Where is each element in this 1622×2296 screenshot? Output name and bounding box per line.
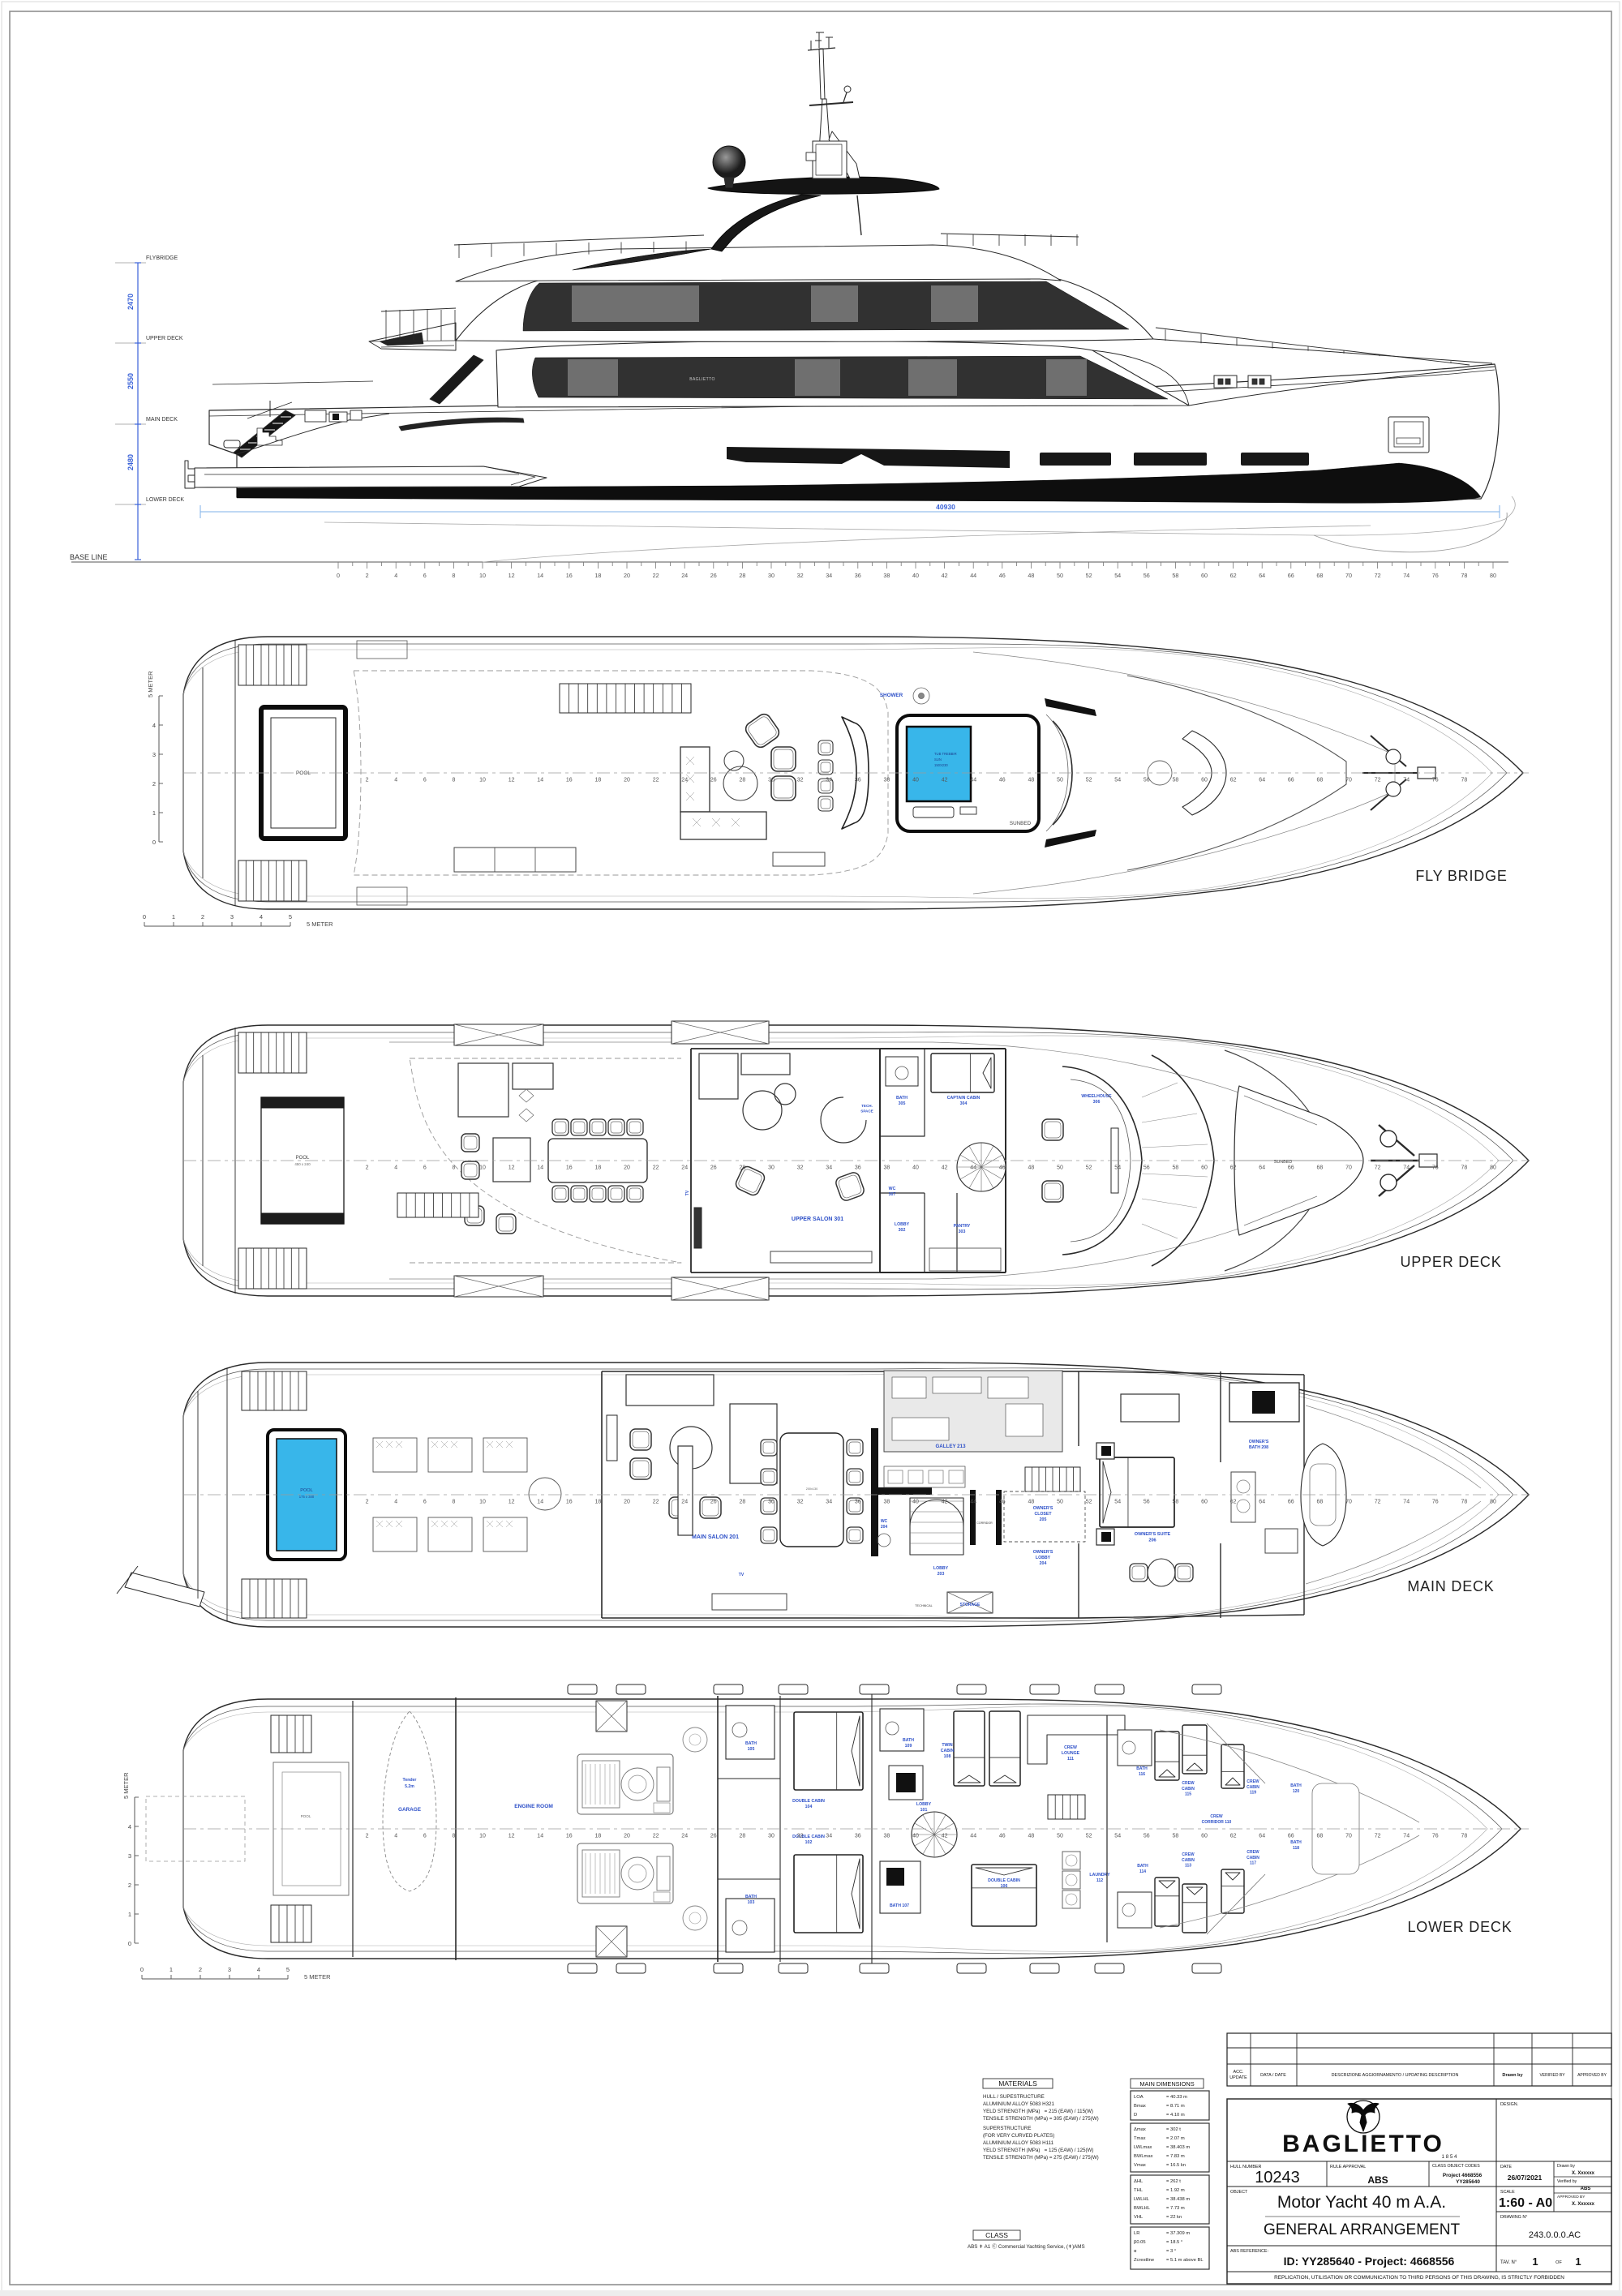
- svg-text:302: 302: [899, 1228, 906, 1233]
- svg-text:5 METER: 5 METER: [307, 921, 333, 928]
- svg-text:YELD STRENGTH (MPa) = 215 (E: YELD STRENGTH (MPa) = 215 (EAW) / 115(W): [983, 2109, 1093, 2114]
- svg-text:4: 4: [394, 572, 397, 579]
- svg-text:BATH: BATH: [903, 1738, 914, 1743]
- svg-text:44: 44: [970, 1834, 976, 1839]
- svg-text:2: 2: [199, 1966, 202, 1973]
- svg-text:Verified by: Verified by: [1557, 2179, 1577, 2184]
- svg-text:38: 38: [884, 1834, 890, 1839]
- svg-text:TENSILE STRENGTH (MPa) = 275 (: TENSILE STRENGTH (MPa) = 275 (EAW) / 275…: [983, 2155, 1099, 2161]
- svg-text:12: 12: [508, 1500, 515, 1505]
- svg-text:ALUMINIUM ALLOY 5083 H111: ALUMINIUM ALLOY 5083 H111: [983, 2140, 1054, 2146]
- svg-text:TV: TV: [685, 1190, 690, 1195]
- svg-text:44: 44: [970, 1165, 976, 1171]
- svg-text:102: 102: [805, 1840, 813, 1845]
- svg-text:50: 50: [1057, 1165, 1063, 1171]
- svg-text:74: 74: [1403, 572, 1410, 579]
- svg-text:YY285640: YY285640: [1456, 2179, 1480, 2185]
- svg-text:46: 46: [999, 572, 1006, 579]
- svg-text:2550: 2550: [127, 373, 135, 389]
- svg-text:50: 50: [1057, 778, 1063, 783]
- svg-text:THL: THL: [1134, 2188, 1144, 2193]
- svg-text:76: 76: [1432, 572, 1439, 579]
- svg-text:FLYBRIDGE: FLYBRIDGE: [146, 255, 178, 261]
- svg-text:= 8.71 m: = 8.71 m: [1166, 2104, 1185, 2109]
- svg-text:22: 22: [653, 572, 659, 579]
- svg-text:3: 3: [228, 1966, 231, 1973]
- svg-text:104: 104: [805, 1805, 813, 1809]
- svg-text:60: 60: [1201, 1165, 1208, 1171]
- svg-text:Bmax: Bmax: [1134, 2104, 1146, 2109]
- svg-text:70: 70: [1345, 1165, 1352, 1171]
- svg-text:26: 26: [710, 778, 717, 783]
- svg-text:304: 304: [960, 1101, 968, 1106]
- svg-text:450 x 240: 450 x 240: [294, 1162, 311, 1166]
- svg-text:ABS ✝ A1 Ⓒ Commercial Yachting: ABS ✝ A1 Ⓒ Commercial Yachting Service, …: [968, 2243, 1085, 2250]
- svg-text:OWNER'S: OWNER'S: [1033, 1506, 1053, 1511]
- svg-text:LOA: LOA: [1134, 2095, 1144, 2100]
- svg-text:78: 78: [1461, 1500, 1468, 1505]
- svg-text:36: 36: [855, 778, 861, 783]
- svg-text:0: 0: [128, 1940, 131, 1947]
- svg-text:30: 30: [768, 1165, 775, 1171]
- svg-text:109: 109: [905, 1744, 912, 1749]
- svg-text:68: 68: [1316, 572, 1323, 579]
- svg-text:SUNBED: SUNBED: [1010, 821, 1032, 826]
- svg-text:20: 20: [624, 778, 630, 783]
- svg-text:24: 24: [681, 572, 688, 579]
- svg-text:CREW: CREW: [1182, 1852, 1195, 1857]
- svg-text:2: 2: [366, 1834, 369, 1839]
- svg-text:68: 68: [1317, 1165, 1324, 1171]
- svg-text:2: 2: [366, 572, 369, 579]
- svg-text:32: 32: [797, 778, 804, 783]
- svg-text:LOWER DECK: LOWER DECK: [1407, 1919, 1512, 1935]
- svg-text:CLASS OBJECT CODES: CLASS OBJECT CODES: [1432, 2164, 1480, 2169]
- svg-text:Drawn by: Drawn by: [1502, 2073, 1523, 2078]
- svg-text:120: 120: [1293, 1789, 1300, 1794]
- svg-text:28: 28: [740, 1834, 746, 1839]
- svg-text:18: 18: [595, 1500, 602, 1505]
- svg-text:BATH: BATH: [896, 1096, 908, 1101]
- svg-text:14: 14: [537, 1165, 543, 1171]
- svg-text:DESCRIZIONE AGGIORNAMENTO / UP: DESCRIZIONE AGGIORNAMENTO / UPDATING DES…: [1332, 2073, 1459, 2078]
- svg-text:3: 3: [230, 913, 234, 921]
- svg-text:54: 54: [1114, 1165, 1121, 1171]
- svg-text:48: 48: [1028, 1834, 1035, 1839]
- svg-text:46: 46: [999, 1834, 1006, 1839]
- svg-text:6: 6: [423, 572, 427, 579]
- svg-text:203: 203: [938, 1572, 945, 1577]
- svg-text:2: 2: [366, 1500, 369, 1505]
- svg-text:48: 48: [1028, 1165, 1035, 1171]
- svg-text:PANTRY: PANTRY: [954, 1224, 971, 1229]
- svg-text:26: 26: [710, 1834, 717, 1839]
- svg-text:72: 72: [1375, 1500, 1381, 1505]
- svg-text:10: 10: [479, 1500, 486, 1505]
- svg-text:= 7.83 m: = 7.83 m: [1166, 2154, 1185, 2159]
- svg-text:26/07/2021: 26/07/2021: [1508, 2174, 1543, 2182]
- svg-text:64: 64: [1259, 572, 1265, 579]
- svg-text:60: 60: [1201, 778, 1208, 783]
- svg-text:20: 20: [624, 1500, 630, 1505]
- svg-text:UPDATE: UPDATE: [1229, 2075, 1247, 2080]
- svg-text:4: 4: [152, 722, 156, 729]
- svg-text:10: 10: [479, 1834, 486, 1839]
- svg-text:18: 18: [595, 1165, 602, 1171]
- svg-text:32: 32: [797, 1165, 804, 1171]
- svg-text:76: 76: [1432, 778, 1439, 783]
- svg-text:= 2.07 m: = 2.07 m: [1166, 2136, 1185, 2141]
- svg-text:48: 48: [1028, 1500, 1035, 1505]
- svg-text:16: 16: [566, 572, 573, 579]
- svg-text:64: 64: [1259, 1834, 1265, 1839]
- svg-text:DESIGN.: DESIGN.: [1500, 2102, 1518, 2107]
- svg-text:Tender: Tender: [403, 1778, 417, 1783]
- svg-text:CABIN: CABIN: [1247, 1856, 1259, 1860]
- svg-text:205: 205: [1040, 1517, 1047, 1522]
- svg-text:= 22 kn: = 22 kn: [1166, 2215, 1182, 2220]
- svg-text:80: 80: [1490, 572, 1496, 579]
- svg-text:52: 52: [1086, 572, 1092, 579]
- svg-text:16: 16: [566, 1165, 573, 1171]
- svg-text:TAV. N°: TAV. N°: [1500, 2260, 1517, 2265]
- svg-text:117: 117: [1250, 1861, 1256, 1866]
- svg-text:113: 113: [1185, 1864, 1191, 1869]
- svg-text:1: 1: [1575, 2255, 1581, 2268]
- svg-text:14: 14: [537, 1500, 543, 1505]
- svg-text:ALUMINIUM ALLOY 5083 H321: ALUMINIUM ALLOY 5083 H321: [983, 2101, 1054, 2107]
- svg-text:10: 10: [479, 572, 486, 579]
- svg-text:48: 48: [1028, 778, 1035, 783]
- svg-text:TWIN: TWIN: [942, 1743, 953, 1748]
- svg-text:175 x 340: 175 x 340: [299, 1495, 315, 1499]
- svg-text:70: 70: [1345, 1834, 1352, 1839]
- svg-text:APPROVED BY: APPROVED BY: [1577, 2073, 1607, 2078]
- svg-text:CABIN: CABIN: [1182, 1787, 1195, 1792]
- svg-text:76: 76: [1432, 1165, 1439, 1171]
- svg-text:54: 54: [1114, 1500, 1121, 1505]
- svg-text:10243: 10243: [1255, 2169, 1300, 2187]
- svg-text:0: 0: [152, 839, 156, 846]
- svg-text:66: 66: [1288, 1165, 1294, 1171]
- svg-text:42: 42: [942, 1165, 948, 1171]
- svg-text:56: 56: [1144, 1834, 1150, 1839]
- svg-text:24: 24: [681, 1500, 688, 1505]
- svg-text:Drawn by: Drawn by: [1557, 2164, 1575, 2169]
- svg-text:RULE APPROVAL: RULE APPROVAL: [1330, 2165, 1366, 2169]
- svg-text:BATH: BATH: [1290, 1783, 1302, 1788]
- svg-text:44: 44: [970, 1500, 976, 1505]
- svg-text:72: 72: [1375, 1834, 1381, 1839]
- svg-text:28: 28: [740, 778, 746, 783]
- svg-text:CLASS: CLASS: [985, 2231, 1008, 2239]
- svg-text:108: 108: [944, 1754, 951, 1759]
- svg-text:305: 305: [899, 1101, 906, 1106]
- svg-text:20: 20: [624, 1165, 630, 1171]
- svg-text:BWLHL: BWLHL: [1134, 2206, 1151, 2211]
- svg-text:68: 68: [1317, 1500, 1324, 1505]
- svg-text:= 40.33 m: = 40.33 m: [1166, 2095, 1187, 2100]
- svg-text:BWLmax: BWLmax: [1134, 2154, 1153, 2159]
- svg-text:64: 64: [1259, 1165, 1265, 1171]
- svg-text:24: 24: [681, 1165, 688, 1171]
- svg-text:D: D: [1134, 2113, 1137, 2118]
- svg-text:34: 34: [826, 572, 832, 579]
- svg-text:5 METER: 5 METER: [122, 1772, 130, 1799]
- svg-text:16: 16: [566, 1500, 573, 1505]
- svg-text:LWLmax: LWLmax: [1134, 2145, 1152, 2150]
- svg-text:70: 70: [1345, 778, 1352, 783]
- svg-text:52: 52: [1086, 1834, 1092, 1839]
- svg-text:38: 38: [884, 1165, 890, 1171]
- svg-text:= 37.309 m: = 37.309 m: [1166, 2231, 1190, 2236]
- svg-text:118: 118: [1293, 1846, 1299, 1851]
- svg-text:60: 60: [1201, 572, 1208, 579]
- svg-text:44: 44: [970, 778, 976, 783]
- svg-text:36: 36: [855, 572, 861, 579]
- svg-text:1: 1: [152, 809, 156, 817]
- svg-text:OWNER'S: OWNER'S: [1249, 1440, 1269, 1444]
- svg-text:CORRIDOR: CORRIDOR: [976, 1521, 993, 1525]
- svg-text:46: 46: [999, 778, 1006, 783]
- svg-text:115: 115: [1185, 1792, 1191, 1797]
- svg-text:LOBBY: LOBBY: [933, 1566, 949, 1571]
- svg-text:LOWER DECK: LOWER DECK: [146, 497, 184, 503]
- svg-text:14: 14: [537, 1834, 543, 1839]
- svg-text:22: 22: [653, 1500, 659, 1505]
- svg-text:CREW: CREW: [1247, 1779, 1259, 1784]
- svg-text:306: 306: [1093, 1100, 1101, 1105]
- svg-text:POOL: POOL: [296, 770, 311, 776]
- svg-text:VHL: VHL: [1134, 2215, 1144, 2220]
- svg-text:78: 78: [1461, 1165, 1468, 1171]
- svg-text:46: 46: [999, 1165, 1006, 1171]
- svg-text:ABS: ABS: [1581, 2187, 1591, 2191]
- svg-text:64: 64: [1259, 778, 1265, 783]
- svg-text:40: 40: [912, 572, 919, 579]
- svg-text:APPROVED BY: APPROVED BY: [1557, 2195, 1586, 2199]
- svg-text:HULL / SUPESTRUCTURE: HULL / SUPESTRUCTURE: [983, 2094, 1045, 2100]
- svg-text:8: 8: [452, 1500, 455, 1505]
- svg-text:OWNER'S: OWNER'S: [1033, 1550, 1053, 1555]
- svg-text:32: 32: [797, 572, 804, 579]
- svg-text:32: 32: [797, 1500, 804, 1505]
- svg-text:12: 12: [508, 1165, 515, 1171]
- svg-text:WC: WC: [881, 1519, 888, 1524]
- svg-text:Vmax: Vmax: [1134, 2163, 1146, 2168]
- svg-text:4: 4: [394, 1165, 397, 1171]
- svg-text:16: 16: [566, 778, 573, 783]
- svg-text:0: 0: [140, 1966, 144, 1973]
- svg-text:2: 2: [152, 780, 156, 788]
- svg-text:5 METER: 5 METER: [147, 671, 154, 697]
- svg-text:5: 5: [286, 1966, 290, 1973]
- svg-text:80: 80: [1490, 1500, 1496, 1505]
- svg-text:3: 3: [152, 751, 156, 758]
- svg-text:5.2m: 5.2m: [405, 1784, 414, 1789]
- svg-text:50: 50: [1057, 1834, 1063, 1839]
- svg-text:72: 72: [1375, 778, 1381, 783]
- svg-text:36: 36: [855, 1834, 861, 1839]
- svg-text:DRAWING N°: DRAWING N°: [1500, 2215, 1527, 2220]
- svg-text:SUPERSTRUCTURE: SUPERSTRUCTURE: [983, 2126, 1031, 2131]
- svg-text:8: 8: [452, 778, 455, 783]
- svg-text:WC: WC: [889, 1187, 896, 1191]
- svg-text:40930: 40930: [936, 503, 955, 511]
- svg-text:74: 74: [1403, 778, 1410, 783]
- svg-text:70: 70: [1345, 1500, 1352, 1505]
- svg-text:BATH 107: BATH 107: [890, 1903, 909, 1908]
- svg-text:6: 6: [423, 1165, 427, 1171]
- svg-text:1: 1: [172, 913, 175, 921]
- svg-text:MAIN DECK: MAIN DECK: [146, 417, 178, 423]
- svg-text:46: 46: [999, 1500, 1006, 1505]
- svg-text:34: 34: [826, 1165, 832, 1171]
- svg-text:20: 20: [624, 572, 630, 579]
- svg-text:= 7.73 m: = 7.73 m: [1166, 2206, 1185, 2211]
- svg-text:6: 6: [423, 778, 427, 783]
- svg-text:5: 5: [289, 913, 292, 921]
- svg-text:8: 8: [452, 572, 455, 579]
- svg-text:20: 20: [624, 1834, 630, 1839]
- svg-text:4: 4: [394, 778, 397, 783]
- svg-text:42: 42: [942, 778, 948, 783]
- svg-text:56: 56: [1144, 572, 1150, 579]
- svg-text:243.0.0.0.AC: 243.0.0.0.AC: [1529, 2230, 1581, 2240]
- svg-text:ID: YY285640 - Project: 466855: ID: YY285640 - Project: 4668556: [1284, 2255, 1455, 2268]
- svg-text:GARAGE: GARAGE: [398, 1807, 422, 1813]
- svg-text:BATH 208: BATH 208: [1249, 1445, 1268, 1450]
- svg-text:BASE LINE: BASE LINE: [70, 553, 108, 561]
- svg-text:FLY BRIDGE: FLY BRIDGE: [1415, 868, 1507, 884]
- svg-text:CLOSET: CLOSET: [1034, 1512, 1052, 1517]
- svg-text:56: 56: [1144, 1165, 1150, 1171]
- svg-text:12: 12: [508, 572, 515, 579]
- svg-text:OBJECT: OBJECT: [1230, 2190, 1248, 2195]
- svg-text:32: 32: [797, 1834, 804, 1839]
- svg-text:111: 111: [1067, 1757, 1074, 1762]
- svg-text:62: 62: [1230, 572, 1237, 579]
- svg-text:36: 36: [855, 1165, 861, 1171]
- svg-text:= 38.403 m: = 38.403 m: [1166, 2145, 1190, 2150]
- svg-text:Motor Yacht 40 m A.A.: Motor Yacht 40 m A.A.: [1277, 2193, 1446, 2212]
- svg-text:18: 18: [595, 778, 602, 783]
- svg-text:54: 54: [1114, 572, 1121, 579]
- svg-text:BATH: BATH: [745, 1895, 757, 1899]
- svg-text:40: 40: [912, 1500, 919, 1505]
- svg-text:LOBBY: LOBBY: [895, 1222, 910, 1227]
- svg-text:24: 24: [681, 1834, 688, 1839]
- svg-text:18: 18: [595, 1834, 602, 1839]
- svg-text:Δmax: Δmax: [1134, 2127, 1146, 2132]
- svg-text:204: 204: [881, 1525, 888, 1530]
- svg-text:26: 26: [710, 1165, 717, 1171]
- svg-text:= 18.5 °: = 18.5 °: [1166, 2240, 1182, 2245]
- svg-text:ENGINE ROOM: ENGINE ROOM: [514, 1804, 553, 1809]
- svg-text:58: 58: [1173, 1834, 1179, 1839]
- svg-text:40: 40: [912, 778, 919, 783]
- svg-text:BATH: BATH: [1136, 1766, 1148, 1771]
- svg-text:TECHNICAL: TECHNICAL: [915, 1604, 933, 1607]
- svg-text:103: 103: [748, 1900, 755, 1905]
- svg-text:= 16.5 kn: = 16.5 kn: [1166, 2163, 1186, 2168]
- svg-text:106: 106: [1001, 1884, 1008, 1889]
- svg-text:= 38.438 m: = 38.438 m: [1166, 2197, 1190, 2202]
- svg-text:303: 303: [959, 1230, 966, 1234]
- svg-text:50: 50: [1057, 1500, 1063, 1505]
- svg-text:4: 4: [260, 913, 263, 921]
- svg-text:62: 62: [1230, 778, 1237, 783]
- svg-text:LWLHL: LWLHL: [1134, 2197, 1150, 2202]
- svg-text:30: 30: [768, 1500, 775, 1505]
- svg-text:BATH: BATH: [745, 1741, 757, 1746]
- svg-text:62: 62: [1230, 1500, 1237, 1505]
- svg-text:4: 4: [394, 1834, 397, 1839]
- svg-text:TV: TV: [739, 1573, 744, 1577]
- svg-text:0: 0: [337, 572, 340, 579]
- svg-text:3: 3: [128, 1852, 131, 1860]
- svg-text:BATH: BATH: [1137, 1864, 1148, 1869]
- svg-text:68: 68: [1317, 1834, 1324, 1839]
- svg-text:0: 0: [143, 913, 146, 921]
- svg-text:8: 8: [452, 1834, 455, 1839]
- svg-text:MAIN DECK: MAIN DECK: [1407, 1578, 1494, 1594]
- svg-text:DATA / DATE: DATA / DATE: [1260, 2073, 1286, 2078]
- svg-text:LOUNGE: LOUNGE: [1062, 1751, 1080, 1756]
- svg-text:78: 78: [1461, 778, 1468, 783]
- svg-text:TENSILE STRENGTH (MPa) = 305 (: TENSILE STRENGTH (MPa) = 305 (EAW) / 275…: [983, 2116, 1099, 2122]
- svg-text:CREW: CREW: [1064, 1745, 1077, 1750]
- svg-text:2470: 2470: [127, 294, 135, 310]
- svg-text:4: 4: [394, 1500, 397, 1505]
- svg-text:26: 26: [710, 572, 717, 579]
- svg-text:MAIN DIMENSIONS: MAIN DIMENSIONS: [1139, 2080, 1194, 2088]
- svg-text:Tmax: Tmax: [1134, 2136, 1146, 2141]
- svg-text:52: 52: [1086, 1165, 1092, 1171]
- svg-text:2480: 2480: [127, 454, 135, 470]
- svg-text:116: 116: [1139, 1772, 1145, 1777]
- svg-text:= 262 t: = 262 t: [1166, 2179, 1181, 2184]
- svg-text:78: 78: [1461, 572, 1467, 579]
- svg-text:REPLICATION, UTILISATION OR CO: REPLICATION, UTILISATION OR COMMUNICATIO…: [1274, 2275, 1564, 2281]
- svg-text:28: 28: [740, 1165, 746, 1171]
- svg-text:72: 72: [1375, 572, 1381, 579]
- svg-text:42: 42: [942, 1834, 948, 1839]
- svg-text:DOUBLE CABIN: DOUBLE CABIN: [792, 1799, 825, 1804]
- svg-text:GALLEY 213: GALLEY 213: [935, 1444, 966, 1449]
- svg-text:76: 76: [1432, 1500, 1439, 1505]
- svg-text:1:60 - A0: 1:60 - A0: [1499, 2196, 1552, 2210]
- svg-text:1: 1: [128, 1911, 131, 1918]
- svg-text:CAPTAIN CABIN: CAPTAIN CABIN: [947, 1096, 980, 1101]
- svg-text:LOBBY: LOBBY: [1036, 1556, 1051, 1560]
- svg-text:62: 62: [1230, 1165, 1237, 1171]
- svg-text:12: 12: [508, 778, 515, 783]
- svg-text:52: 52: [1086, 1500, 1092, 1505]
- svg-text:68: 68: [1317, 778, 1324, 783]
- svg-text:66: 66: [1288, 572, 1294, 579]
- svg-text:150X230: 150X230: [934, 763, 948, 767]
- svg-text:4: 4: [257, 1966, 260, 1973]
- svg-text:ABS REFERENCE:: ABS REFERENCE:: [1230, 2249, 1268, 2254]
- svg-text:58: 58: [1173, 778, 1179, 783]
- svg-text:2: 2: [366, 778, 369, 783]
- svg-text:CABIN: CABIN: [941, 1749, 955, 1753]
- svg-text:42: 42: [942, 1500, 948, 1505]
- svg-text:LR: LR: [1134, 2231, 1139, 2236]
- svg-text:206: 206: [1148, 1538, 1156, 1543]
- svg-text:70: 70: [1345, 572, 1352, 579]
